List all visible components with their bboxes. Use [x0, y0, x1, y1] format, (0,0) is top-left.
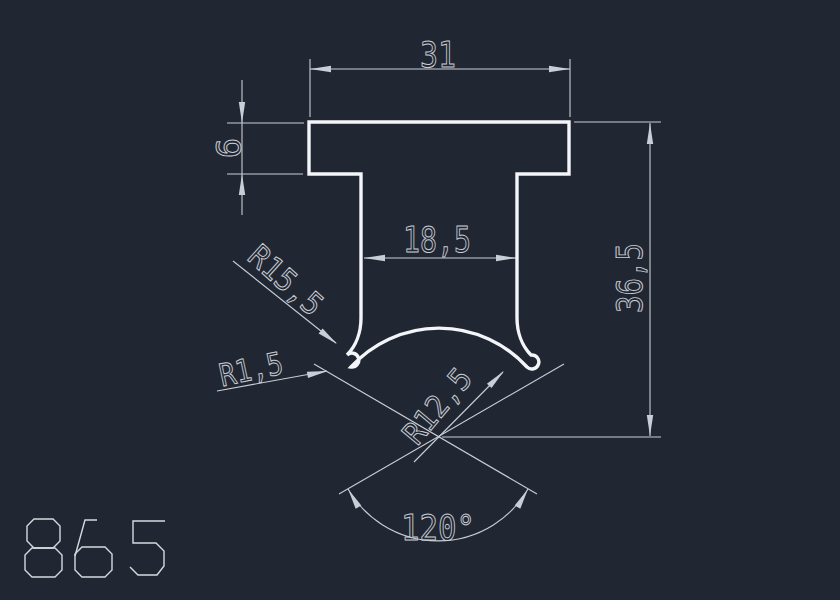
arrow-r12-5	[487, 371, 504, 388]
digit-8-top-loop	[27, 519, 60, 548]
arrow-r15-5	[319, 328, 337, 344]
arrow-18-5-right	[496, 255, 517, 261]
digit-8-bottom-loop	[25, 548, 62, 577]
arrow-18-5-left	[364, 255, 385, 261]
arrow-angle-right	[515, 489, 528, 509]
arrow-angle-left	[348, 489, 361, 509]
cad-drawing: 31 6 18,5 36,5 R15,5 R1,5 R12,5 120° 865	[0, 0, 840, 600]
dimension-texts: 31 6 18,5 36,5 R15,5 R1,5 R12,5 120°	[209, 34, 650, 548]
dim-label-slot-width: 18,5	[403, 219, 471, 260]
dim-label-top-width: 31	[420, 34, 456, 75]
arrow-36-5-top	[647, 123, 653, 144]
dim-label-angle: 120°	[401, 507, 475, 548]
arrow-31-left	[310, 66, 331, 72]
dim-label-flange-thickness: 6	[209, 138, 249, 158]
arrow-r1-5	[307, 371, 328, 378]
cad-drawing-canvas[interactable]: 31 6 18,5 36,5 R15,5 R1,5 R12,5 120° 865	[0, 0, 840, 600]
arrow-6-top	[239, 102, 245, 123]
dim-label-radius-outer: R15,5	[241, 237, 330, 323]
dim-label-radius-fillet: R1,5	[216, 345, 286, 394]
dim-label-total-height: 36,5	[609, 243, 650, 313]
digit-5	[130, 521, 165, 575]
arrow-36-5-bottom	[647, 415, 653, 436]
digit-6-bowl	[75, 547, 112, 577]
arrow-6-bottom	[239, 174, 245, 195]
part-number: 865	[25, 519, 165, 577]
arrow-31-right	[549, 66, 570, 72]
